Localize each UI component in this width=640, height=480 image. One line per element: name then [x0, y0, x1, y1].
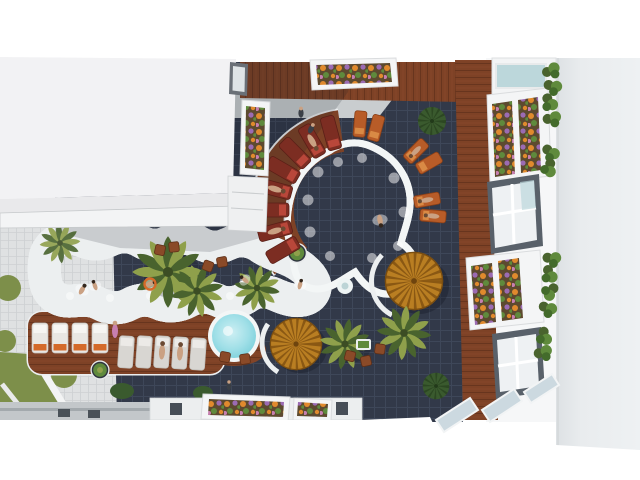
round-bush	[423, 373, 450, 400]
flower-planter-bottom-2	[293, 398, 332, 421]
round-bush	[418, 107, 446, 135]
balcony-planter-lower	[466, 250, 544, 330]
bottom-door	[170, 403, 182, 415]
bottom-window	[58, 409, 70, 417]
top-margin	[0, 0, 640, 57]
sun-lounger-row-white	[32, 321, 118, 353]
person-pink-towel	[112, 321, 118, 338]
left-roof	[0, 57, 236, 199]
right-roof	[556, 58, 640, 480]
sun-lounger-row-gray	[117, 336, 206, 371]
shrub	[110, 383, 134, 399]
flower-planter-bottom	[201, 394, 290, 422]
facade-window-upper	[487, 174, 543, 254]
bottom-door	[336, 402, 348, 415]
round-planter	[91, 361, 109, 379]
bottom-window	[88, 410, 100, 418]
apartment-building-left	[0, 57, 270, 232]
render-canvas	[0, 0, 640, 480]
skylight	[496, 64, 546, 88]
pool-fountain-center	[342, 283, 349, 290]
flower-planter-top	[310, 58, 398, 90]
balcony-flower-planter	[240, 100, 270, 176]
terrace-steps	[228, 176, 268, 232]
pool-courtyard-render	[0, 0, 640, 480]
